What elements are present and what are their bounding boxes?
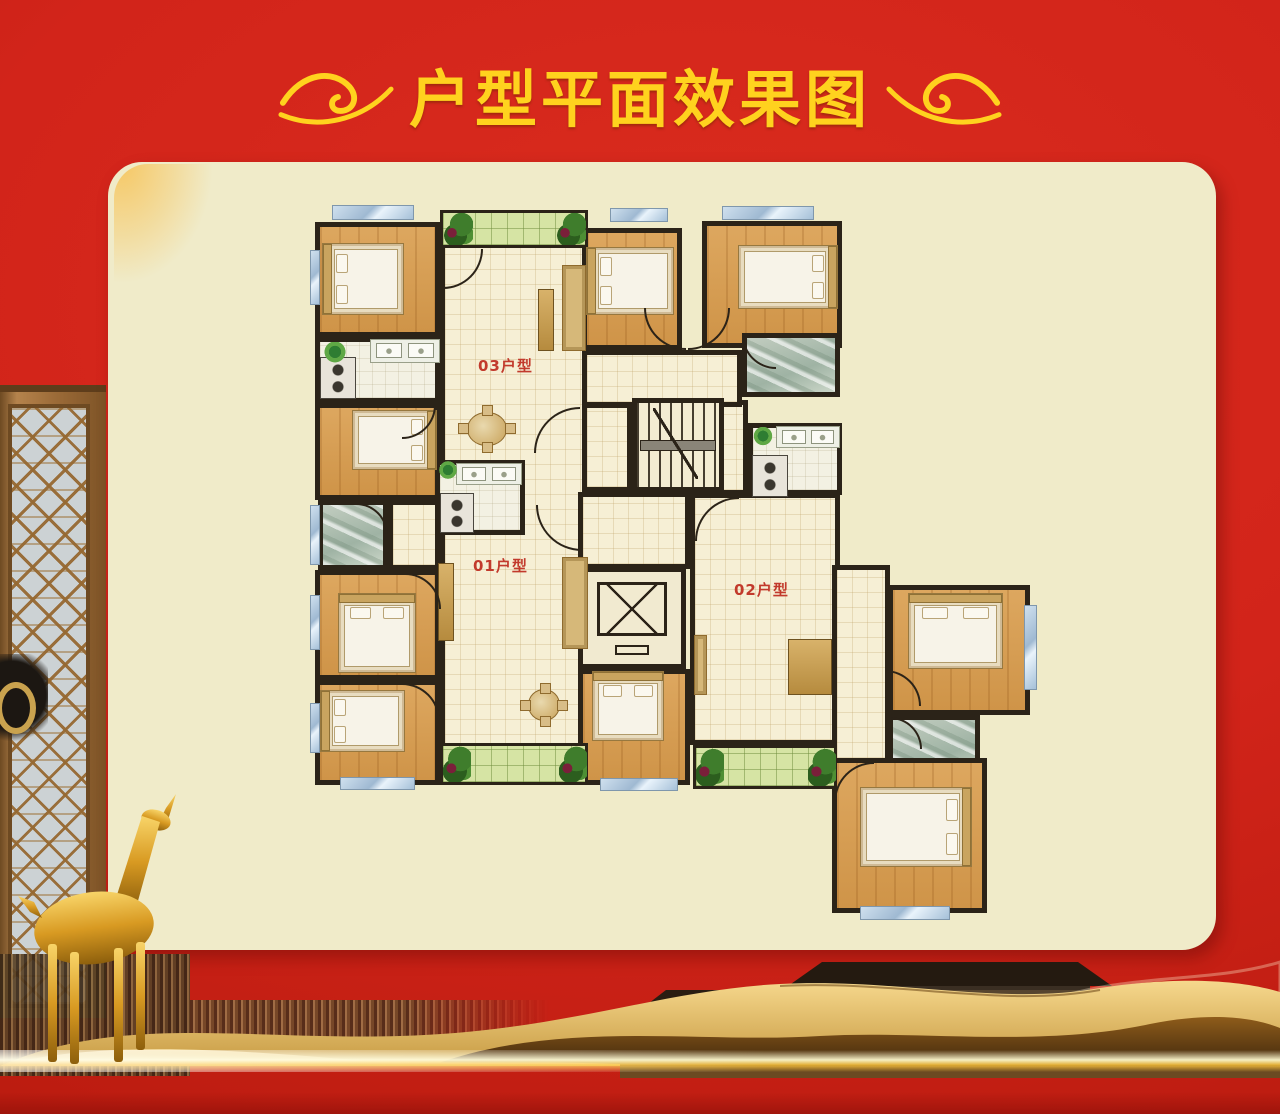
hallway-01 — [388, 500, 440, 570]
swirl-flourish-left-icon — [277, 59, 395, 129]
header: 户型平面效果图 — [0, 34, 1280, 154]
bed — [322, 243, 404, 315]
window — [340, 777, 415, 790]
balcony-shrub — [559, 746, 587, 782]
stove — [440, 493, 474, 533]
stairwell — [632, 398, 724, 492]
hallway-02 — [832, 565, 890, 763]
poster-page: 户型平面效果图 03户型01户型02户型 — [0, 0, 1280, 1114]
window — [722, 206, 814, 220]
window — [610, 208, 668, 222]
sofa — [562, 557, 588, 649]
dining-table — [520, 683, 568, 727]
sink-counter — [370, 339, 440, 363]
sink-counter — [776, 426, 840, 448]
bottom-shadow — [0, 1092, 1280, 1114]
balcony-shrub — [443, 746, 471, 782]
sofa — [694, 635, 707, 695]
swirl-flourish-right-icon — [885, 59, 1003, 129]
window — [310, 505, 320, 565]
balcony-shrub — [443, 213, 473, 245]
balcony-shrub — [696, 748, 724, 786]
window — [860, 906, 950, 920]
golden-deer-statue — [16, 776, 178, 1068]
window — [600, 778, 678, 791]
potted-plant — [322, 342, 348, 364]
balcony-shrub — [556, 213, 586, 245]
sofa — [562, 265, 586, 351]
door-knocker-ring-icon — [0, 654, 48, 746]
unit-label: 01户型 — [473, 555, 528, 576]
bed — [592, 671, 664, 741]
stove — [752, 455, 788, 497]
potted-plant — [752, 427, 774, 447]
horizon-glow — [0, 1050, 1280, 1072]
dunes-illustration — [0, 944, 1280, 1114]
tv-cabinet — [788, 639, 832, 695]
window — [310, 595, 320, 650]
stair-landing — [582, 403, 632, 492]
window — [310, 250, 320, 305]
gold-corner-ornament — [114, 164, 244, 334]
bed — [320, 690, 405, 752]
floor-plan: 03户型01户型02户型 — [310, 205, 1035, 945]
bottom-scene — [0, 944, 1280, 1114]
page-title: 户型平面效果图 — [409, 49, 871, 139]
window — [332, 205, 414, 220]
bed — [908, 593, 1003, 669]
unit-label: 03户型 — [478, 355, 533, 376]
dining-table — [458, 405, 516, 453]
elevator — [578, 567, 686, 669]
balcony-shrub — [808, 748, 836, 786]
bed — [738, 245, 838, 309]
hall — [578, 492, 690, 569]
potted-plant — [438, 461, 458, 481]
tv-cabinet — [538, 289, 554, 351]
bed — [586, 247, 674, 315]
unit-label: 02户型 — [734, 579, 789, 600]
sink-counter — [456, 463, 522, 485]
window — [1024, 605, 1037, 690]
window — [310, 703, 320, 753]
bed — [860, 787, 972, 867]
